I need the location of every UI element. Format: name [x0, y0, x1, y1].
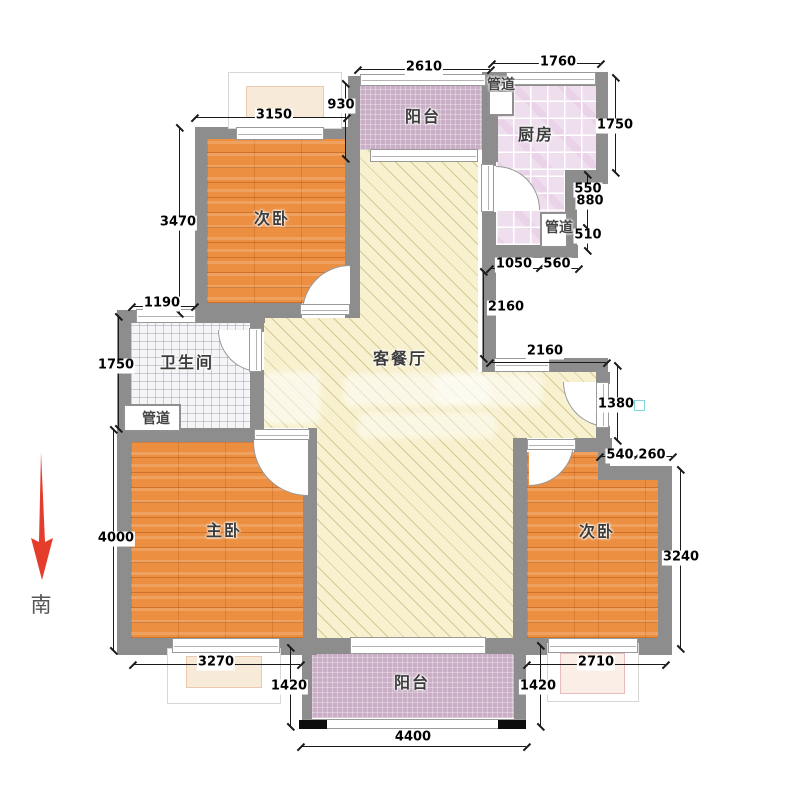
window-balcony-top-rail	[360, 74, 486, 86]
wall	[482, 212, 496, 258]
window-bedroom-top	[236, 127, 324, 140]
dim-1050: 1050	[495, 258, 533, 273]
south-arrow-icon	[26, 450, 58, 582]
duct-label-kitchen: 管道	[545, 217, 573, 237]
dim-2610: 2610	[405, 61, 443, 76]
dim-line	[483, 272, 484, 358]
room-label-bedroom-right: 次卧	[579, 518, 615, 542]
dim-line	[301, 746, 526, 747]
dim-2710: 2710	[577, 656, 615, 671]
dim-3150: 3150	[255, 109, 293, 124]
duct-label-top: 管道	[487, 74, 515, 94]
dim-1190: 1190	[143, 297, 181, 312]
window-bedroom-right-bottom	[548, 638, 638, 653]
dim-1750-right: 1750	[596, 119, 634, 134]
duct-label-bathroom: 管道	[142, 408, 170, 428]
dim-4400: 4400	[394, 731, 432, 746]
dim-1750-left: 1750	[97, 359, 135, 374]
balcony-pier-right	[498, 720, 526, 729]
room-label-bedroom-top: 次卧	[254, 205, 290, 229]
balcony-railing	[303, 719, 524, 729]
door-leaf-bathroom	[249, 328, 262, 372]
dim-4000: 4000	[97, 532, 135, 547]
compass-south-label: 南	[31, 589, 52, 619]
wall	[513, 452, 527, 638]
balcony-pier-left	[299, 720, 327, 729]
dim-3470: 3470	[159, 216, 197, 231]
wall	[348, 76, 360, 160]
window-master-bottom	[172, 638, 280, 653]
floor-plan: 次卧 阳台 厨房 客餐厅 卫生间 主卧 次卧 阳台 管道 管道 管道 2610 …	[0, 0, 800, 800]
dim-1380: 1380	[597, 398, 635, 413]
window-hallway	[494, 358, 550, 372]
door-leaf-kitchen	[481, 164, 494, 212]
wall	[350, 303, 360, 318]
dim-3240: 3240	[662, 551, 700, 566]
watermark-blob	[262, 372, 320, 424]
watermark-blob	[358, 413, 496, 438]
floor-bedroom-right-b	[598, 480, 658, 638]
room-label-bathroom: 卫生间	[160, 349, 214, 373]
dim-540: 540	[605, 449, 634, 464]
dim-2160-v: 2160	[487, 301, 525, 316]
dim-1760: 1760	[539, 56, 577, 71]
window-living-balcony-door	[350, 637, 486, 654]
window-balcony-living	[370, 149, 478, 162]
accent-square-icon	[634, 400, 645, 411]
room-label-balcony-bottom: 阳台	[394, 669, 430, 693]
dim-1420-right: 1420	[519, 680, 557, 695]
wall	[513, 438, 527, 452]
dim-880: 880	[575, 195, 604, 210]
room-label-kitchen: 厨房	[518, 121, 554, 145]
dim-line	[490, 362, 606, 363]
room-label-bedroom-master: 主卧	[206, 517, 242, 541]
door-leaf-bedroom-right	[527, 439, 576, 450]
wall	[250, 370, 264, 432]
dim-3270: 3270	[197, 656, 235, 671]
watermark-blob	[436, 374, 490, 404]
door-leaf-master	[254, 429, 310, 440]
dim-510: 510	[573, 229, 602, 244]
dim-560: 560	[542, 258, 571, 273]
dim-2160-h: 2160	[526, 345, 564, 360]
dim-line	[345, 84, 346, 158]
window-kitchen-top	[506, 72, 596, 85]
dim-930: 930	[326, 99, 355, 114]
room-label-balcony-top: 阳台	[405, 103, 441, 127]
room-label-living-dining: 客餐厅	[373, 345, 427, 369]
dim-1420-left: 1420	[270, 680, 308, 695]
door-leaf-bedroom-top	[300, 304, 350, 315]
dim-260: 260	[637, 449, 666, 464]
